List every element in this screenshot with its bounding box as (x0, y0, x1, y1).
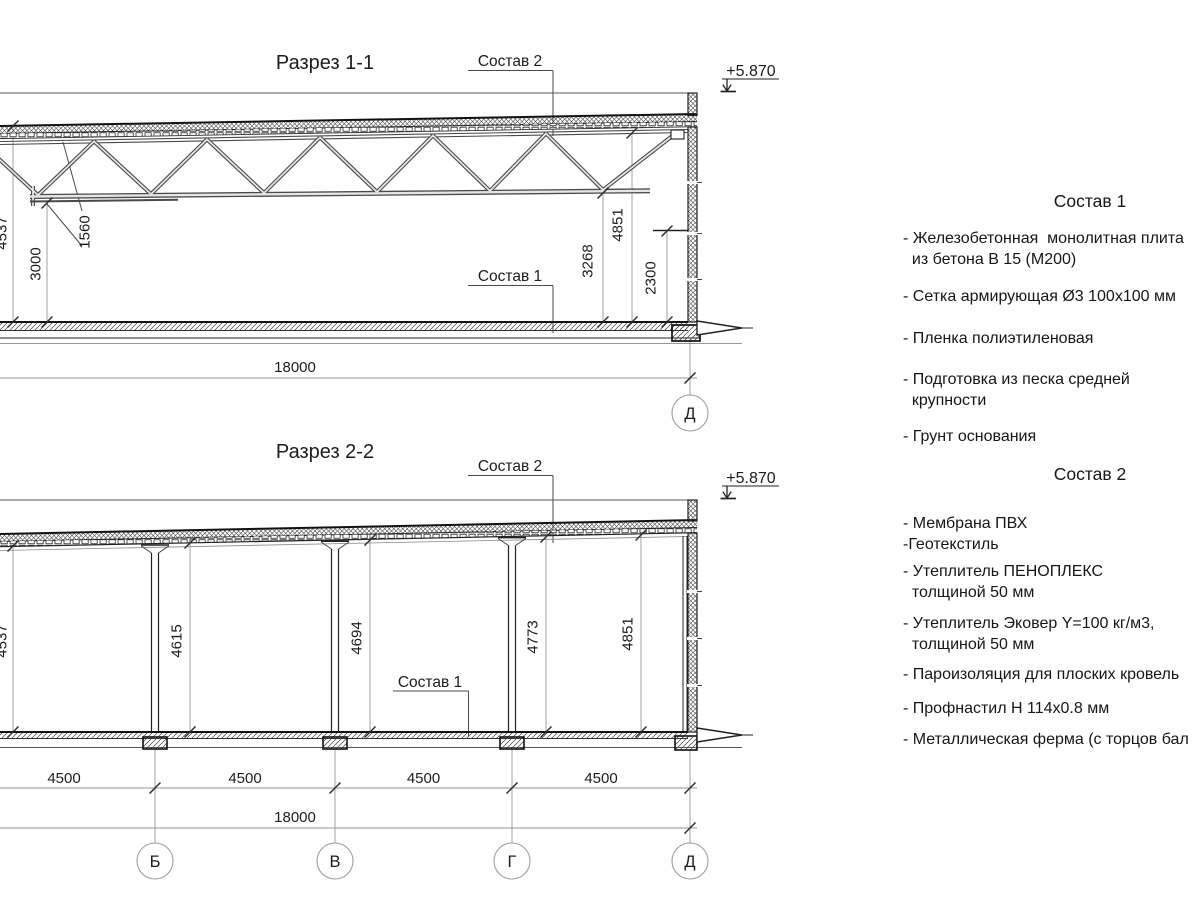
footing-g (500, 737, 524, 749)
note-item: - Грунт основания (903, 426, 1200, 447)
dim-1560: 1560 (77, 215, 94, 248)
roof-assembly-2 (0, 520, 697, 551)
column-d-at-wall (683, 536, 687, 732)
dim-bay-4: 4500 (584, 770, 617, 787)
axis-letter-d-1: Д (684, 405, 695, 423)
roof-truss (0, 130, 688, 207)
dim-3000: 3000 (28, 247, 45, 280)
axis-letter-b: Б (150, 853, 161, 871)
dim-4773: 4773 (525, 620, 542, 653)
section2-title: Разрез 2-2 (276, 441, 374, 463)
axis-letter-d-2: Д (684, 853, 695, 871)
axis-letter-v: В (329, 853, 340, 871)
footing-d (675, 736, 697, 750)
callout-sostav1-s1: Состав 1 (478, 268, 542, 285)
note-item: - Подготовка из песка средней крупности (903, 369, 1200, 411)
truss-bearing (671, 130, 684, 139)
dim-4851-1: 4851 (610, 208, 627, 241)
apron-bracket-2 (697, 728, 742, 742)
columns (141, 536, 687, 732)
note-item: - Профнастил Н 114х0.8 мм (903, 698, 1200, 719)
column-v (321, 541, 349, 732)
note-item: - Пленка полиэтиленовая (903, 328, 1200, 349)
note-item: - Железобетонная монолитная плита из бет… (903, 228, 1200, 270)
note-item: - Пароизоляция для плоских кровель (903, 664, 1200, 685)
elevation-label-2: +5.870 (726, 470, 775, 487)
wall-2 (687, 500, 702, 732)
elevation-mark-2 (721, 486, 780, 499)
section-1-1-drawing: Разрез 1-1 Состав 2 Состав 1 +5.870 1800… (0, 52, 779, 431)
section1-leader-lines (47, 71, 553, 334)
note-item: - Утеплитель ПЕНОПЛЕКС толщиной 50 мм (903, 561, 1200, 603)
note-item: - Мембрана ПВХ -Геотекстиль (903, 513, 1200, 555)
footing-b (143, 737, 167, 749)
dim-bay-2: 4500 (228, 770, 261, 787)
section2-extension-lines (0, 535, 697, 843)
section-2-2-drawing: Разрез 2-2 Состав 2 Состав 1 +5.870 4537… (0, 441, 779, 879)
column-g (498, 538, 526, 732)
dim-span-2: 18000 (274, 809, 316, 826)
note-item: - Сетка армирующая Ø3 100х100 мм (903, 286, 1200, 307)
column-b (141, 545, 169, 732)
notes1-title: Состав 1 (940, 191, 1200, 212)
callout-sostav1-s2: Состав 1 (398, 674, 462, 691)
notes2-title: Состав 2 (940, 464, 1200, 485)
dim-4851-2: 4851 (620, 617, 637, 650)
dim-bay-1: 4500 (47, 770, 80, 787)
elevation-label-1: +5.870 (726, 63, 775, 80)
dim-4694: 4694 (349, 621, 366, 654)
floor-1 (0, 321, 753, 344)
dim-4537-1: 4537 (0, 216, 11, 249)
footing-v (323, 737, 347, 749)
dim-4615: 4615 (169, 624, 186, 657)
section1-title: Разрез 1-1 (276, 52, 374, 74)
note-item: - Металлическая ферма (с торцов бал (903, 729, 1200, 750)
axis-letter-g: Г (508, 853, 517, 871)
floor-2 (0, 728, 753, 750)
callout-sostav2-s2: Состав 2 (478, 458, 542, 475)
dim-bay-3: 4500 (407, 770, 440, 787)
apron-bracket-1 (697, 321, 742, 335)
section2-leader-lines (393, 476, 553, 738)
callout-sostav2-s1: Состав 2 (478, 53, 542, 70)
axis-bubbles-2 (137, 843, 708, 879)
dim-2300: 2300 (643, 261, 660, 294)
elevation-mark-1 (721, 79, 780, 92)
foundation-block-1 (672, 325, 700, 341)
drawing-canvas: Разрез 1-1 Состав 2 Состав 1 +5.870 1800… (0, 0, 1200, 900)
dim-span-1: 18000 (274, 359, 316, 376)
note-item: - Утеплитель Эковер Y=100 кг/м3, толщино… (903, 613, 1200, 655)
dim-3268: 3268 (580, 244, 597, 277)
dim-4537-2: 4537 (0, 624, 11, 657)
